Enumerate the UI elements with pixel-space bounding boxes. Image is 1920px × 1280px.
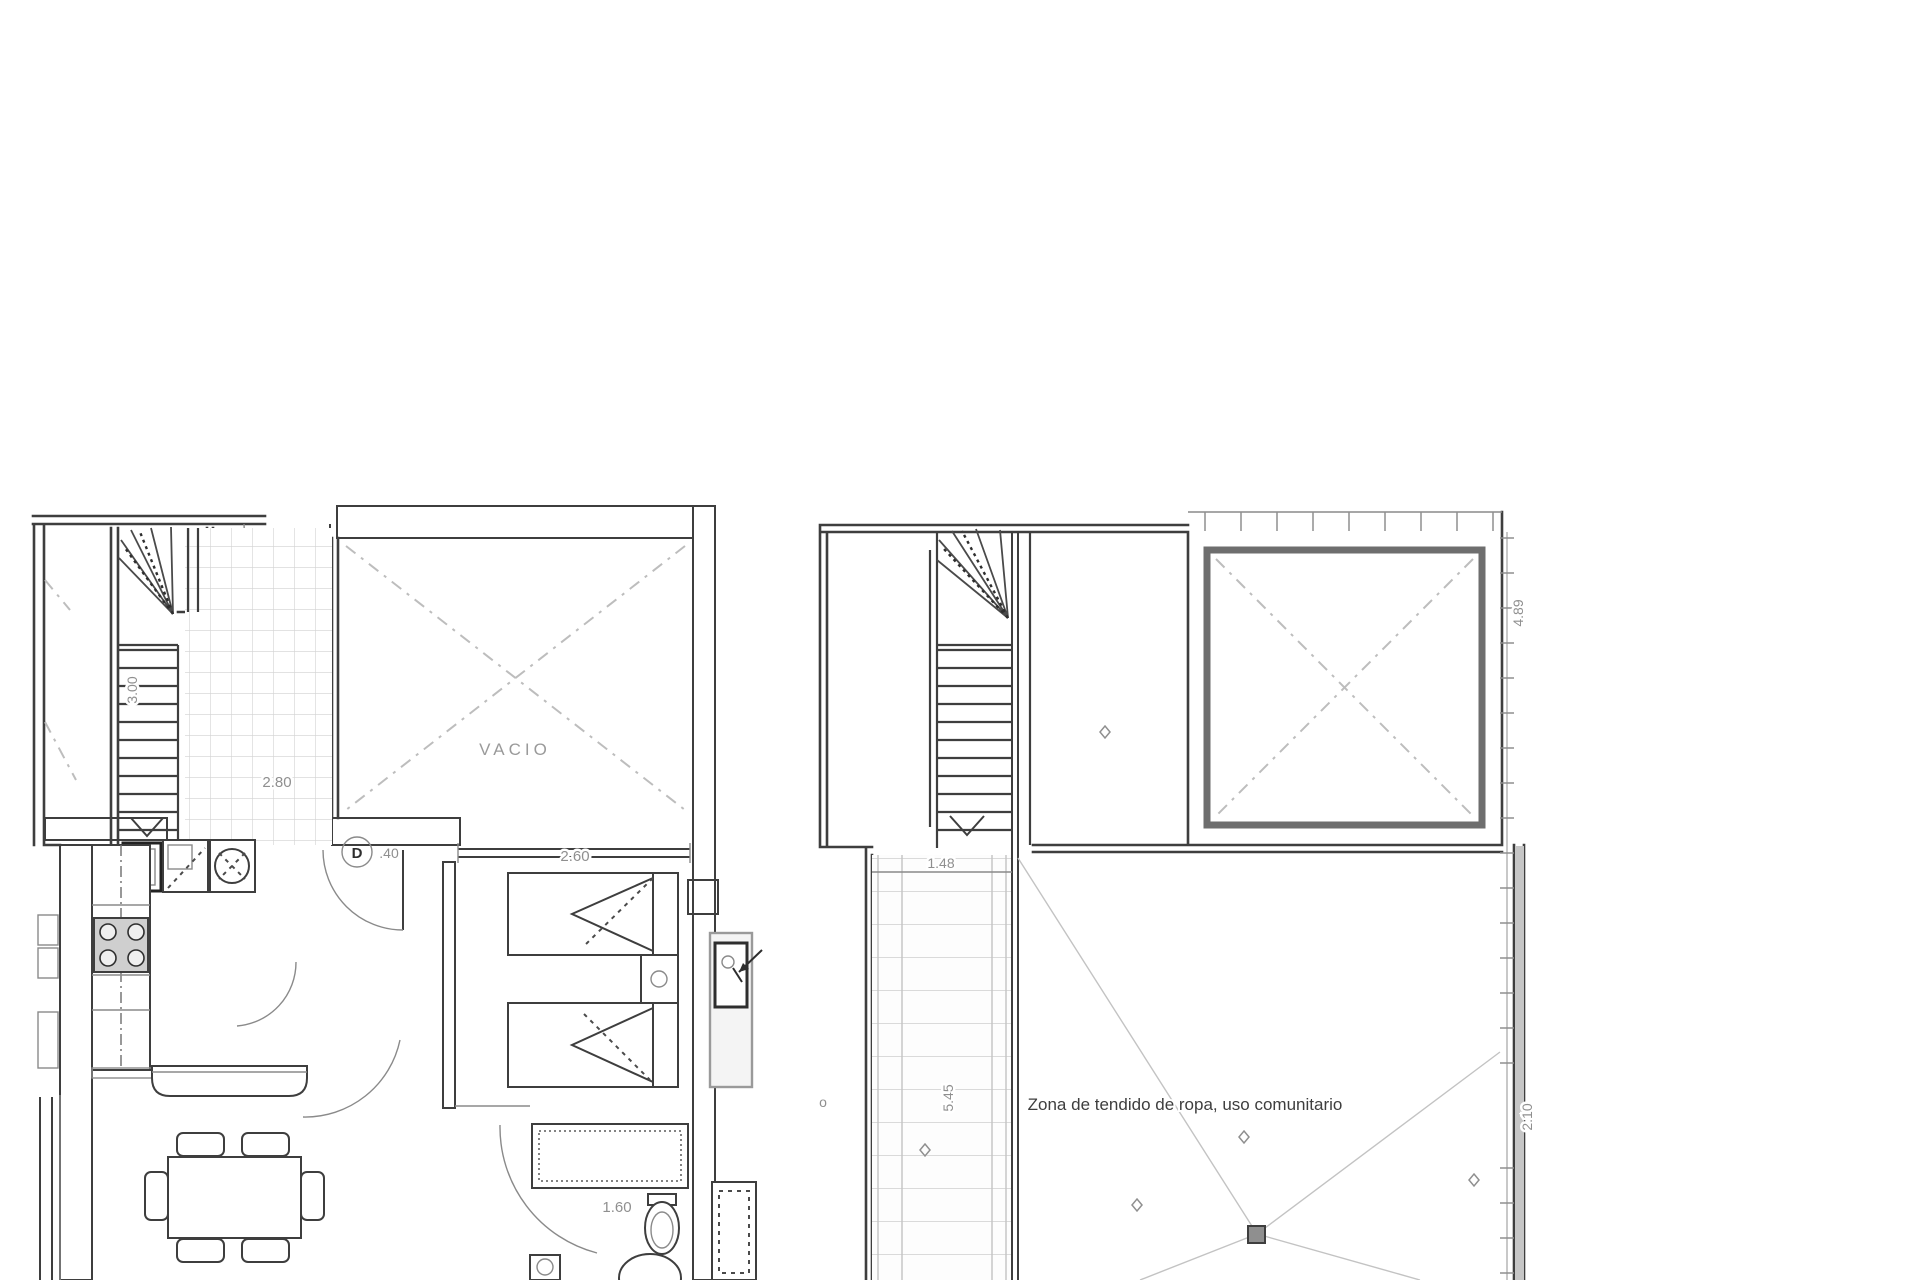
breakfast-counter [152, 1066, 307, 1096]
chair [242, 1133, 289, 1156]
door-arc [323, 850, 403, 930]
wall-top-vacio [337, 506, 693, 538]
stair-direction-arrow [950, 816, 984, 835]
door-tag-letter: D [352, 845, 363, 862]
zone-label: Zona de tendido de ropa, uso comunitario [1028, 1095, 1343, 1114]
hall-dimension: 2.80 [262, 774, 291, 791]
right-lower-dimension: 2.10 [1519, 1103, 1535, 1130]
dining-set [145, 1133, 324, 1262]
adjacent-void-lines [45, 580, 76, 780]
dining-table [168, 1157, 301, 1238]
bathtub [532, 1124, 688, 1188]
tiled-hall-floor [185, 528, 332, 845]
vacio-room: VACIO [346, 546, 685, 810]
chair [301, 1172, 324, 1220]
stray-label: o [819, 1094, 827, 1110]
bedroom [508, 873, 678, 1087]
chair [145, 1172, 168, 1220]
wall-corridor [443, 862, 455, 1108]
patio-length-dimension: 5.45 [940, 1084, 956, 1111]
wall-left-party [60, 845, 92, 1280]
shaft-square [1207, 550, 1482, 825]
bathroom: 1.60 [455, 1106, 688, 1280]
clothes-line-post [1248, 1226, 1265, 1243]
stair-dimension: 3.00 [124, 676, 140, 703]
service-fixtures [710, 933, 762, 1280]
boiler [715, 943, 747, 1007]
door-d40: D .40 [323, 837, 403, 930]
left-plan: 2.80 3.00 VACIO 2.60 D .40 [33, 506, 762, 1280]
vacio-label: VACIO [479, 740, 551, 759]
stair-winder-rays [937, 529, 1008, 618]
right-upper-dimension: 4.89 [1510, 599, 1526, 626]
living-window [40, 1097, 52, 1280]
burner [128, 924, 144, 940]
wall-right-exterior [693, 506, 715, 1280]
right-wall-fill [1515, 846, 1524, 1280]
patio-floor [872, 855, 1012, 1280]
nightstand [641, 955, 678, 1003]
stair-structure [930, 532, 1030, 848]
door-tag-dim: .40 [379, 845, 399, 861]
chair [242, 1239, 289, 1262]
window-dimension: 2.60 [560, 848, 589, 865]
burner [100, 950, 116, 966]
wall-vacio-bottom [332, 818, 460, 845]
chair [177, 1133, 224, 1156]
dishwasher-unit [163, 840, 208, 892]
wall-niche [38, 915, 58, 945]
clothes-lines [1018, 858, 1500, 1280]
kitchen-counter [38, 845, 150, 1070]
stair-walk-line [125, 532, 173, 614]
stair-direction-arrow [131, 818, 163, 836]
patio-width-dimension: 1.48 [927, 855, 954, 871]
kitchen-door-arc [237, 962, 296, 1026]
wall-niche [38, 1012, 58, 1068]
bath-dimension: 1.60 [602, 1199, 631, 1216]
wall-niche [38, 948, 58, 978]
floor-plan-sheet: 2.80 3.00 VACIO 2.60 D .40 [0, 0, 1920, 1280]
right-plan: 1.48 5.45 4.89 2.10 Zona de tendido de r… [819, 512, 1535, 1280]
chair [177, 1239, 224, 1262]
staircase-right [930, 529, 1030, 848]
top-dim-ticks [1205, 512, 1493, 531]
toilet [619, 1254, 681, 1280]
patio-right-wall [1012, 532, 1018, 1280]
void-cross-lines [346, 546, 685, 810]
bidet [645, 1202, 679, 1254]
burner [128, 950, 144, 966]
living-door-arc [303, 1040, 400, 1117]
floor-plan-drawing: 2.80 3.00 VACIO 2.60 D .40 [0, 0, 1920, 1280]
burner [100, 924, 116, 940]
